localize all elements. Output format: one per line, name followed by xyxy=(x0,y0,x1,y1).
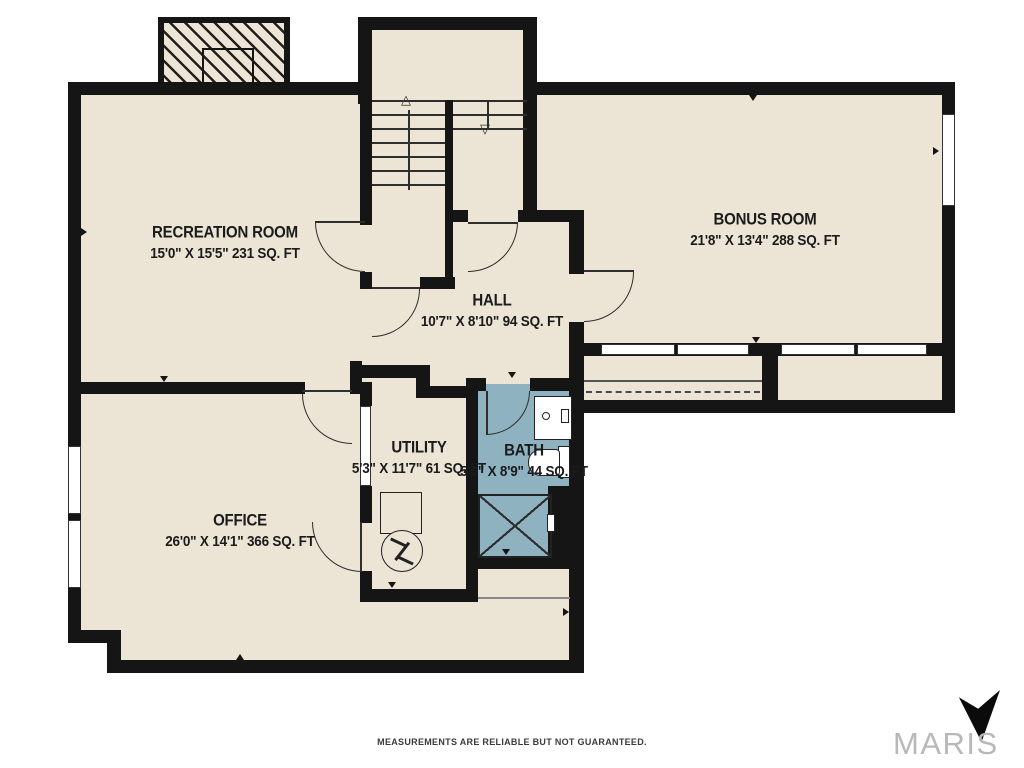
room-label-hall: HALL 10'7" X 8'10" 94 SQ. FT xyxy=(342,290,642,331)
room-dims: 26'0" X 14'1" 366 SQ. FT xyxy=(90,531,390,552)
wall xyxy=(466,378,486,391)
room-label-office: OFFICE 26'0" X 14'1" 366 SQ. FT xyxy=(90,510,390,551)
room-name: BATH xyxy=(374,440,674,461)
wall xyxy=(445,210,468,222)
window xyxy=(677,344,749,355)
room-dims: 15'0" X 15'5" 231 SQ. FT xyxy=(75,243,375,264)
vanity-sink xyxy=(534,396,572,440)
wall xyxy=(358,17,372,104)
wall xyxy=(530,378,582,391)
wall-tick xyxy=(563,608,569,616)
wall-tick xyxy=(388,582,396,588)
wall xyxy=(68,82,372,95)
stair-tread xyxy=(453,114,527,116)
wall-tick xyxy=(160,376,168,382)
room-label-bath: BATH 5'0" X 8'9" 44 SQ. FT xyxy=(374,440,674,481)
wall xyxy=(360,382,372,406)
window xyxy=(68,446,81,514)
wall xyxy=(523,82,955,95)
disclaimer-text: MEASUREMENTS ARE RELIABLE BUT NOT GUARAN… xyxy=(312,737,712,748)
sink-faucet xyxy=(561,409,569,423)
room-name: OFFICE xyxy=(90,510,390,531)
wall-tick xyxy=(238,388,246,394)
room-name: BONUS ROOM xyxy=(615,209,915,230)
shower xyxy=(478,494,552,558)
wall-tick xyxy=(752,337,760,343)
room-name: HALL xyxy=(342,290,642,311)
door-leaf xyxy=(302,390,352,392)
wall-tick xyxy=(749,95,757,101)
wall-tick xyxy=(933,147,939,155)
wall xyxy=(466,386,478,602)
shower-valve xyxy=(547,514,555,532)
strip-line xyxy=(584,380,762,382)
floor-plan: △ ▽ RECREATION ROOM 15 xyxy=(0,0,1024,768)
wall-tick xyxy=(508,372,516,378)
notch-cover xyxy=(62,643,113,673)
wall xyxy=(360,589,478,602)
bolt-line xyxy=(397,556,413,565)
nook-line xyxy=(478,597,570,599)
wall xyxy=(75,382,305,394)
stair-up-line xyxy=(408,110,410,190)
window xyxy=(781,344,855,355)
room-dims: 10'7" X 8'10" 94 SQ. FT xyxy=(342,311,642,332)
strip-dashed-line xyxy=(586,391,760,393)
window xyxy=(601,344,675,355)
wall-tick xyxy=(502,549,510,555)
sink-drain xyxy=(542,412,550,420)
stair-up-arrow-icon: △ xyxy=(401,93,411,108)
stair-down-arrow-icon: ▽ xyxy=(480,122,490,137)
room-name: RECREATION ROOM xyxy=(75,222,375,243)
room-label-recreation: RECREATION ROOM 15'0" X 15'5" 231 SQ. FT xyxy=(75,222,375,263)
room-dims: 5'0" X 8'9" 44 SQ. FT xyxy=(374,461,674,482)
window xyxy=(857,344,927,355)
brand-logo: MARIS xyxy=(893,727,999,761)
stair-tread xyxy=(453,128,527,130)
wall xyxy=(569,210,584,274)
wall xyxy=(360,95,372,225)
wall xyxy=(360,277,372,289)
wall-tick xyxy=(236,654,244,660)
wall xyxy=(762,350,778,405)
room-dims: 21'8" X 13'4" 288 SQ. FT xyxy=(615,230,915,251)
window xyxy=(942,114,955,206)
room-label-bonus: BONUS ROOM 21'8" X 13'4" 288 SQ. FT xyxy=(615,209,915,250)
stair-tread xyxy=(453,100,527,102)
wall xyxy=(358,17,535,30)
wall xyxy=(569,343,584,673)
window xyxy=(68,520,81,588)
wall xyxy=(523,17,537,217)
wall xyxy=(445,100,453,289)
wall xyxy=(107,660,584,673)
